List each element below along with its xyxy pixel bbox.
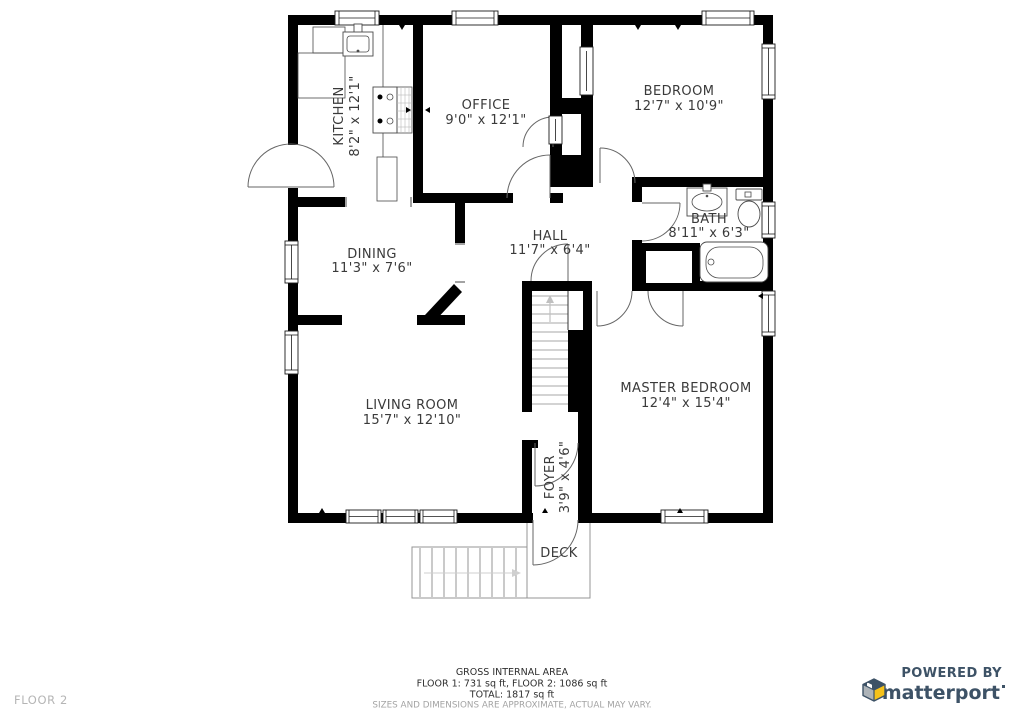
- window-bedroom-top: [702, 11, 754, 25]
- master-door-right: [648, 291, 683, 326]
- kitchen-cabinet: [377, 157, 397, 201]
- hall-name: HALL: [533, 229, 568, 244]
- window-bedroom-right: [762, 44, 775, 99]
- foyer-dims: 3'9" x 4'6": [558, 441, 573, 514]
- kitchen-label: KITCHEN 8'2" x 12'1": [332, 75, 363, 156]
- master-dims: 12'4" x 15'4": [641, 396, 731, 411]
- powered-by-text: POWERED BY: [901, 666, 1002, 681]
- bath-closet: [646, 251, 692, 283]
- matterport-cube-icon: [863, 679, 885, 701]
- bathtub: [700, 242, 768, 282]
- kitchen-name: KITCHEN: [332, 86, 347, 145]
- master-door-left: [597, 291, 632, 326]
- foyer-label: FOYER 3'9" x 4'6": [543, 441, 573, 514]
- floorplan-canvas: KITCHEN 8'2" x 12'1" OFFICE 9'0" x 12'1"…: [0, 0, 1024, 724]
- window-kitchen-top: [335, 11, 379, 25]
- gross-internal-area-title: GROSS INTERNAL AREA: [456, 667, 569, 678]
- dining-name: DINING: [347, 247, 397, 262]
- staircase: [532, 291, 568, 404]
- hall-dims: 11'7" x 6'4": [509, 243, 590, 258]
- window-living-left: [285, 331, 298, 374]
- living-name: LIVING ROOM: [366, 398, 459, 413]
- footer: GROSS INTERNAL AREA FLOOR 1: 731 sq ft, …: [14, 667, 652, 711]
- kitchen-counter-top: [313, 27, 345, 53]
- toilet: [736, 189, 762, 227]
- window-master-right: [762, 291, 775, 336]
- office-closet-slider: [549, 116, 562, 144]
- office-dims: 9'0" x 12'1": [445, 113, 526, 128]
- branding: POWERED BY matterport: [863, 666, 1005, 704]
- window-living-bottom-1: [346, 510, 381, 523]
- room-labels: KITCHEN 8'2" x 12'1" OFFICE 9'0" x 12'1"…: [331, 75, 751, 561]
- living-dims: 15'7" x 12'10": [363, 413, 462, 428]
- total-area: TOTAL: 1817 sq ft: [469, 690, 555, 701]
- bedroom-closet-slider: [580, 47, 593, 95]
- deck-name: DECK: [540, 546, 578, 561]
- kitchen-dims: 8'2" x 12'1": [348, 75, 363, 156]
- side-entry-double-door: [248, 144, 334, 187]
- office-name: OFFICE: [462, 98, 511, 113]
- window-living-bottom-2: [383, 510, 418, 523]
- dining-dims: 11'3" x 7'6": [331, 261, 412, 276]
- kitchen-sink: [343, 24, 373, 56]
- trademark-dot: [1002, 685, 1005, 688]
- window-living-bottom-3: [420, 510, 457, 523]
- stairs-up-arrow: [546, 295, 554, 322]
- window-dining-left: [285, 241, 298, 283]
- bath-name: BATH: [691, 212, 727, 227]
- master-name: MASTER BEDROOM: [620, 381, 751, 396]
- window-bath-right: [762, 202, 775, 238]
- office-door: [507, 155, 550, 198]
- window-master-bottom: [661, 510, 708, 523]
- bedroom-name: BEDROOM: [644, 84, 715, 99]
- foyer-name: FOYER: [543, 455, 558, 499]
- doors: [248, 117, 683, 565]
- office-closet-door: [523, 117, 553, 147]
- bedroom-dims: 12'7" x 10'9": [634, 99, 724, 114]
- bath-dims: 8'11" x 6'3": [668, 226, 749, 241]
- floor-label: FLOOR 2: [14, 693, 68, 707]
- deck-stairs-arrow: [424, 569, 521, 577]
- bedroom-door: [600, 148, 635, 183]
- matterport-wordmark: matterport: [882, 682, 1000, 704]
- disclaimer: SIZES AND DIMENSIONS ARE APPROXIMATE, AC…: [372, 701, 651, 711]
- floor-areas: FLOOR 1: 731 sq ft, FLOOR 2: 1086 sq ft: [417, 679, 608, 690]
- floorplan-page: KITCHEN 8'2" x 12'1" OFFICE 9'0" x 12'1"…: [0, 0, 1024, 724]
- window-office-top: [452, 11, 498, 25]
